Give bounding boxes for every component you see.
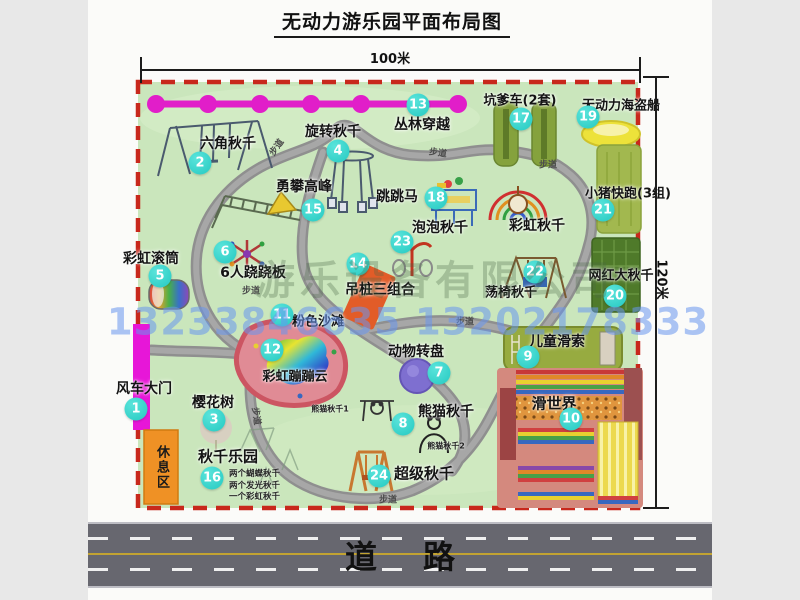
height-dimension-label: 120米 xyxy=(654,257,673,303)
road: 道路 xyxy=(88,522,712,588)
dimension-tick xyxy=(643,507,669,509)
dimension-tick xyxy=(639,57,641,83)
width-dimension-label: 100米 xyxy=(370,48,410,67)
dimension-tick xyxy=(643,76,669,78)
width-dimension-line xyxy=(141,69,640,71)
dimension-tick xyxy=(140,57,142,83)
watermark-company: 游乐设备有限公司 xyxy=(255,248,615,306)
watermark-phone: 13233846635 13202178333 xyxy=(107,301,709,344)
road-label: 道路 xyxy=(299,532,501,578)
screenshot-root: 无动力游乐园平面布局图 100米 120米 xyxy=(0,0,800,600)
page-title: 无动力游乐园平面布局图 xyxy=(274,7,510,38)
rest-area-label: 休息区 xyxy=(145,432,178,503)
